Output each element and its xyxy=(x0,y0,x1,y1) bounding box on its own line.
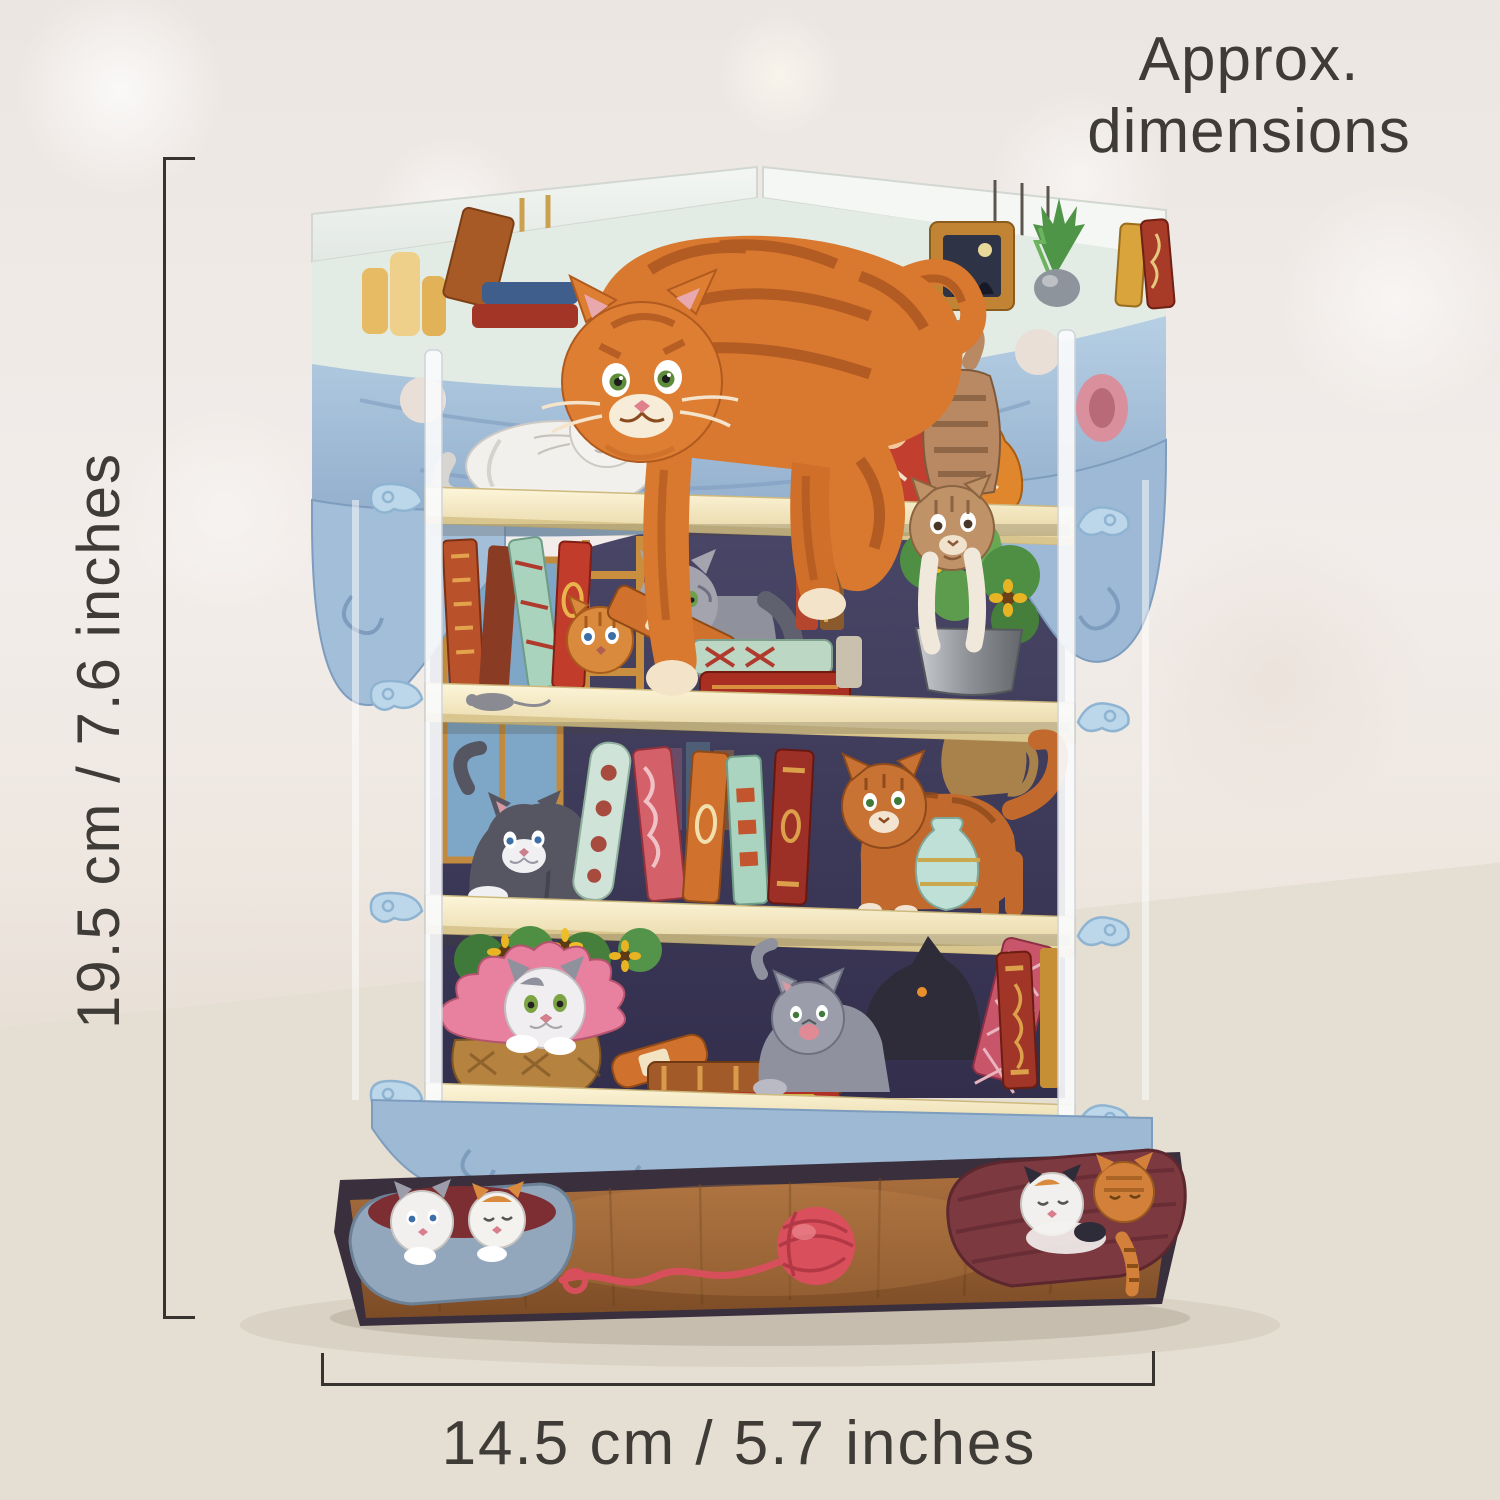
grey-basket-kittens xyxy=(350,1179,574,1304)
height-label-wrap: 19.5 cm / 7.6 inches xyxy=(48,300,148,1180)
width-dimension-line xyxy=(321,1383,1155,1386)
heading-line-1: Approx. xyxy=(1014,24,1484,96)
heading-line-2: dimensions xyxy=(1014,96,1484,168)
product-photo: Approx. dimensions 19.5 cm / 7.6 inches … xyxy=(0,0,1500,1500)
height-dimension-line xyxy=(163,157,166,1319)
height-dimension-tick-top xyxy=(163,157,195,160)
hanger-hole-right xyxy=(1015,329,1061,375)
book-spines-right xyxy=(996,948,1060,1089)
width-dimension-tick-left xyxy=(321,1353,324,1386)
width-dimension-tick-right xyxy=(1152,1351,1155,1386)
approx-dimensions-heading: Approx. dimensions xyxy=(1014,24,1484,168)
card-base xyxy=(334,1150,1186,1326)
width-dimension-label: 14.5 cm / 5.7 inches xyxy=(322,1408,1156,1479)
height-dimension-label: 19.5 cm / 7.6 inches xyxy=(64,452,133,1029)
height-dimension-tick-bottom xyxy=(163,1316,195,1319)
popup-card xyxy=(0,0,1500,1500)
